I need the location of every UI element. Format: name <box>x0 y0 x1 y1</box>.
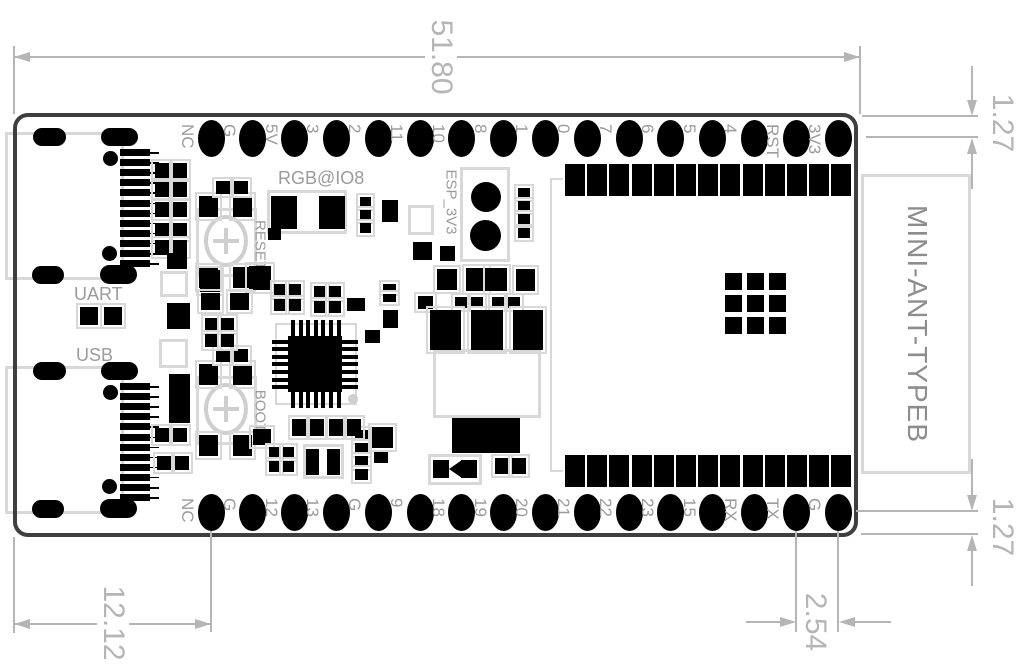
dim-line <box>746 621 782 623</box>
dim-board-width: 51.80 <box>425 16 457 97</box>
dim-extension-line <box>861 533 978 535</box>
dim-extension-line <box>866 136 978 138</box>
dim-arrow <box>839 617 855 627</box>
dim-arrow <box>967 495 977 511</box>
dim-line <box>971 153 973 189</box>
dim-extension-line <box>862 115 978 117</box>
dim-top-pin-offset: 1.27 <box>986 91 1018 155</box>
dim-line <box>971 459 973 495</box>
dim-line <box>971 550 973 586</box>
dim-line <box>855 621 891 623</box>
pcb-technical-drawing: UART USB RESET BOOT RGB@IO8 ESP_3V3 <box>0 0 1033 671</box>
dim-arrow <box>14 619 30 629</box>
dim-arrow <box>967 535 977 551</box>
dim-arrow <box>14 52 30 62</box>
dim-arrow <box>780 617 796 627</box>
dim-extension-line <box>210 531 212 632</box>
dim-arrow <box>195 619 211 629</box>
dim-arrow <box>967 100 977 116</box>
dim-pin-pitch: 2.54 <box>799 590 831 654</box>
dim-arrow <box>967 138 977 154</box>
dim-bottom-pin-offset: 1.27 <box>986 495 1018 559</box>
dimension-layer: 51.80 1.27 1.27 2.54 12.12 <box>0 0 1033 671</box>
dim-edge-to-first-pin: 12.12 <box>97 582 129 663</box>
dim-extension-line <box>856 510 978 512</box>
dim-line <box>971 66 973 102</box>
dim-arrow <box>844 52 860 62</box>
